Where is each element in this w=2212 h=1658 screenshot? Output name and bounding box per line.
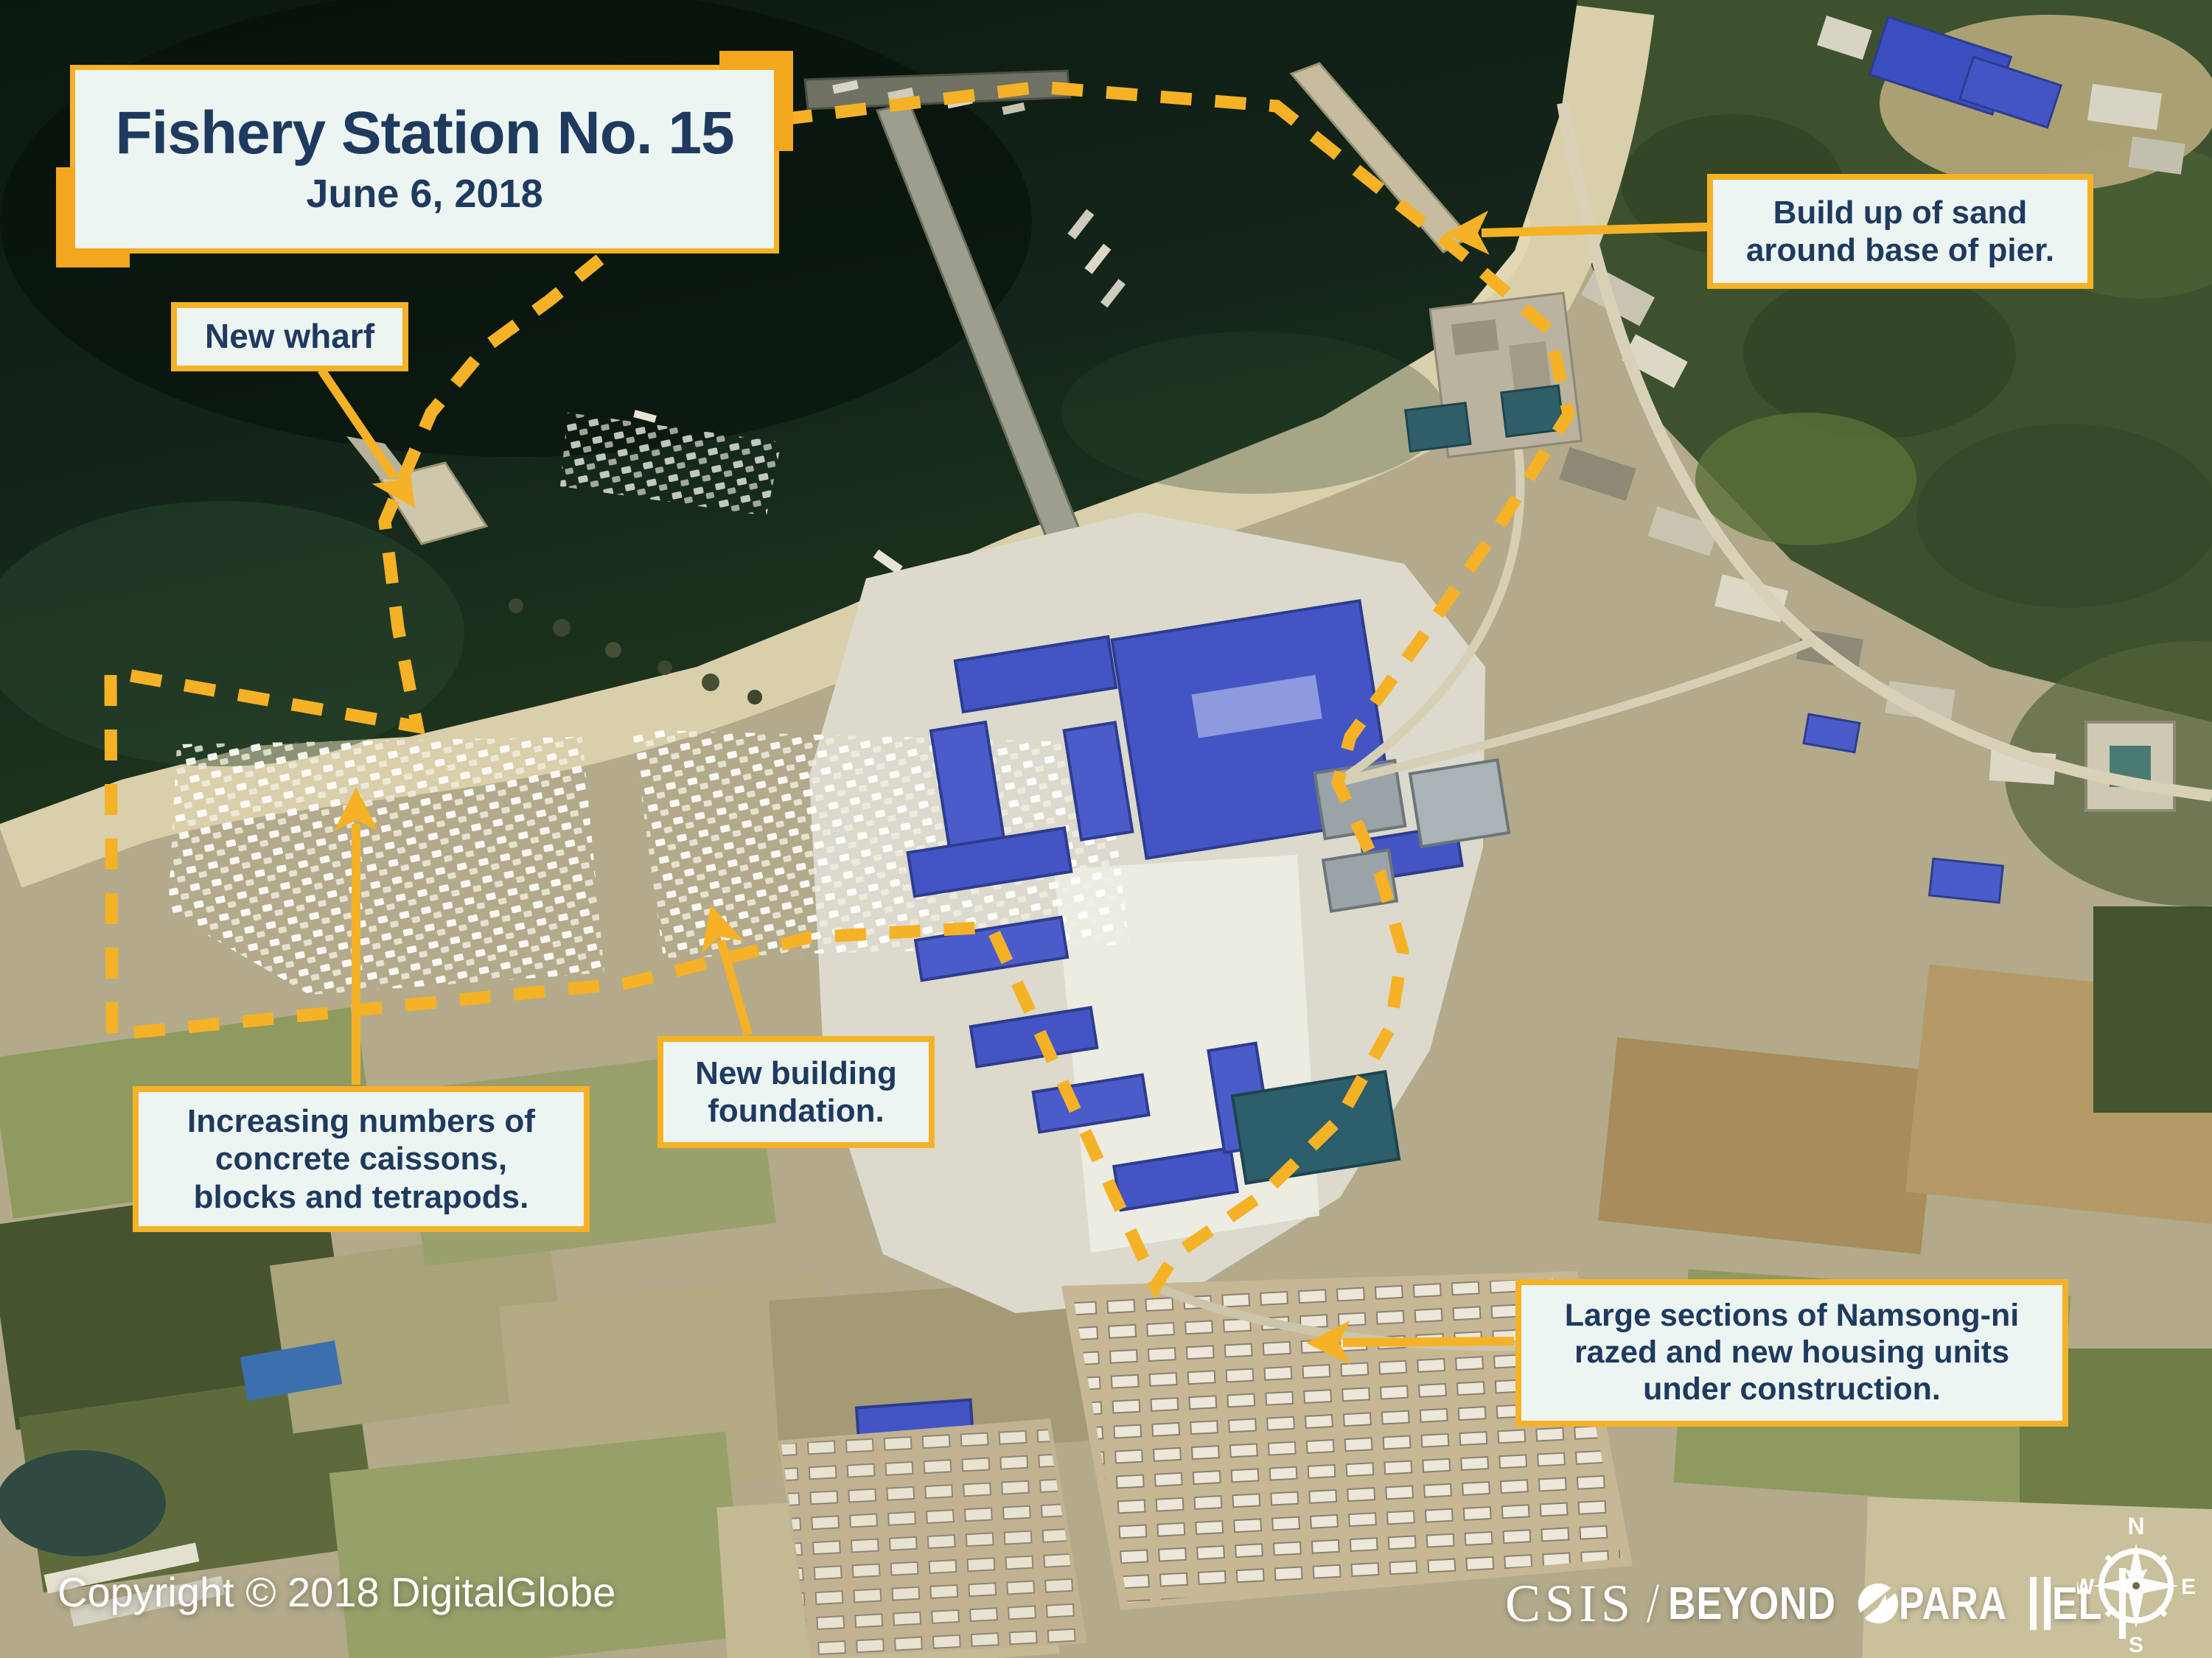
annotation-sand-buildup: Build up of sand around base of pier. xyxy=(1707,174,2093,289)
title-box: Fishery Station No. 15 June 6, 2018 xyxy=(70,65,779,253)
annotation-text: New building xyxy=(695,1054,897,1092)
annotation-text: Increasing numbers of xyxy=(187,1102,535,1140)
annotation-caissons: Increasing numbers of concrete caissons,… xyxy=(133,1086,590,1232)
csis-wordmark: CSIS xyxy=(1505,1573,1635,1634)
annotation-text: Large sections of Namsong-ni xyxy=(1565,1298,2019,1335)
compass-east-label: E xyxy=(2181,1575,2195,1599)
title-corner-accent-top-right xyxy=(719,51,793,151)
annotation-text: New wharf xyxy=(205,317,374,356)
annotation-text: Build up of sand xyxy=(1773,194,2028,231)
compass-north-label: N xyxy=(2127,1513,2144,1539)
annotation-foundation: New building foundation. xyxy=(657,1036,935,1148)
parallel-bars-icon xyxy=(2030,1577,2051,1630)
compass-south-label: S xyxy=(2129,1633,2143,1657)
title-corner-accent-bottom-left xyxy=(56,167,130,267)
csis-beyond-parallel-logo: CSIS / BEYOND PARA EL xyxy=(1505,1567,2130,1640)
annotation-text: blocks and tetrapods. xyxy=(194,1178,529,1216)
infographic-canvas: Fishery Station No. 15 June 6, 2018 New … xyxy=(0,0,2212,1658)
annotation-text: razed and new housing units xyxy=(1574,1335,2009,1371)
annotation-text: around base of pier. xyxy=(1746,231,2054,269)
compass-west-label: W xyxy=(2077,1575,2095,1599)
annotation-new-wharf: New wharf xyxy=(171,302,408,371)
page-title: Fishery Station No. 15 xyxy=(115,102,733,165)
annotation-text: foundation. xyxy=(708,1092,885,1130)
parallel-wordmark-start: PARA xyxy=(1899,1578,2007,1630)
annotation-text: concrete caissons, xyxy=(215,1140,507,1178)
copyright-text: Copyright © 2018 DigitalGlobe xyxy=(57,1568,615,1616)
beyond-wordmark: BEYOND xyxy=(1668,1578,1836,1630)
compass-rose-icon: N E S W xyxy=(2077,1512,2195,1658)
parallel-globe-icon xyxy=(1855,1580,1902,1627)
page-date: June 6, 2018 xyxy=(306,171,542,217)
annotation-text: under construction. xyxy=(1643,1371,1941,1408)
logo-slash: / xyxy=(1647,1572,1659,1636)
annotation-namsong: Large sections of Namsong-ni razed and n… xyxy=(1515,1279,2068,1427)
